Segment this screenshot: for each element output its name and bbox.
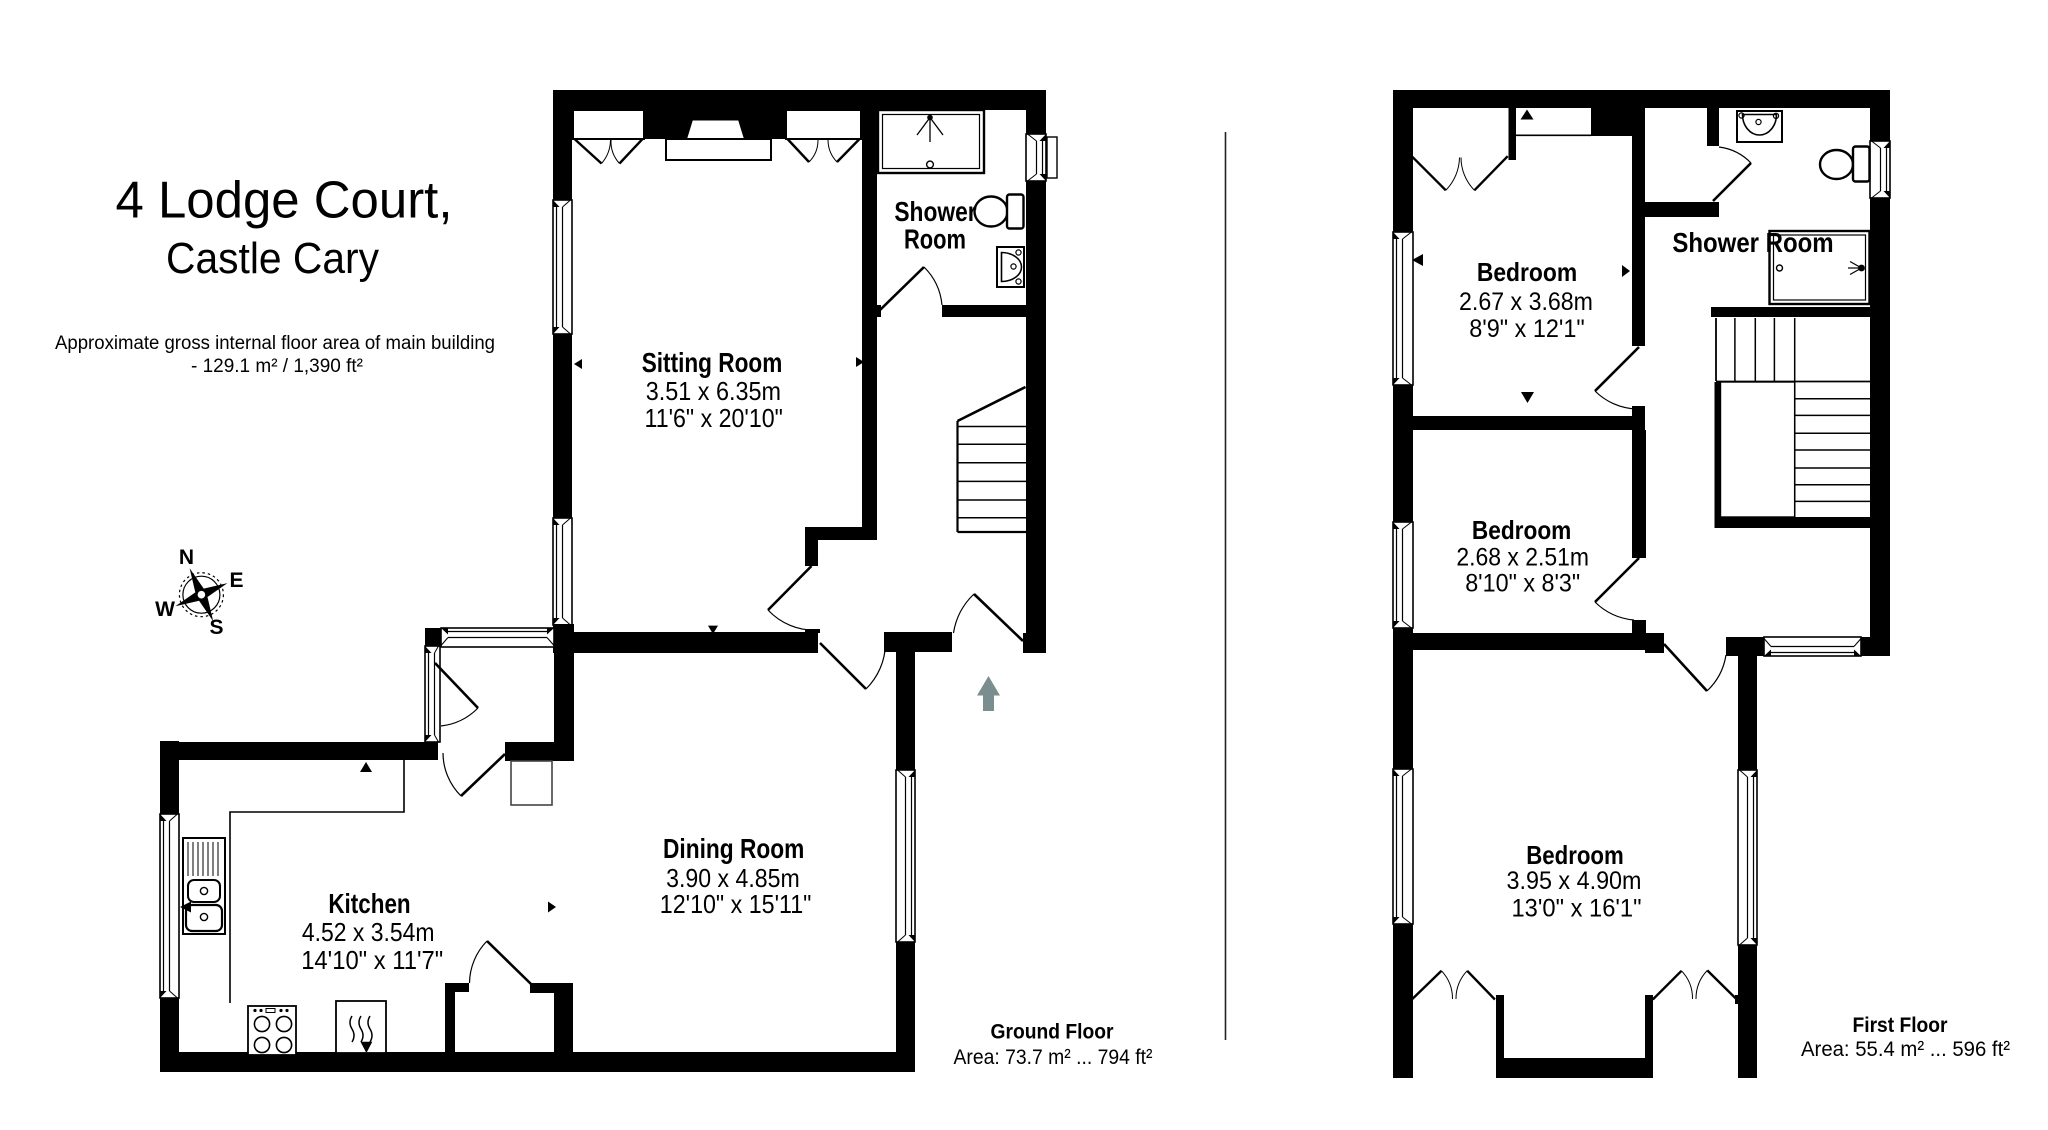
svg-text:Shower Room: Shower Room xyxy=(1672,227,1833,258)
svg-text:Area: 55.4 m² ... 596 ft²: Area: 55.4 m² ... 596 ft² xyxy=(1801,1037,2010,1061)
svg-text:13'0" x 16'1": 13'0" x 16'1" xyxy=(1512,895,1642,923)
svg-text:Castle Cary: Castle Cary xyxy=(166,234,379,283)
svg-text:Area: 73.7 m² ... 794 ft²: Area: 73.7 m² ... 794 ft² xyxy=(954,1045,1153,1069)
svg-text:2.67 x 3.68m: 2.67 x 3.68m xyxy=(1459,288,1593,316)
svg-text:Bedroom: Bedroom xyxy=(1472,515,1572,545)
svg-text:Sitting Room: Sitting Room xyxy=(642,347,783,378)
svg-text:3.51 x 6.35m: 3.51 x 6.35m xyxy=(646,376,781,406)
svg-text:12'10" x 15'11": 12'10" x 15'11" xyxy=(660,889,812,919)
svg-text:8'9" x 12'1": 8'9" x 12'1" xyxy=(1469,315,1585,343)
svg-text:E: E xyxy=(229,569,243,592)
svg-text:8'10" x 8'3": 8'10" x 8'3" xyxy=(1465,570,1580,598)
svg-text:4 Lodge Court,: 4 Lodge Court, xyxy=(116,172,453,230)
svg-text:S: S xyxy=(209,616,223,639)
svg-text:14'10" x 11'7": 14'10" x 11'7" xyxy=(301,945,443,975)
svg-text:- 129.1 m² / 1,390 ft²: - 129.1 m² / 1,390 ft² xyxy=(191,356,363,377)
svg-text:Kitchen: Kitchen xyxy=(328,888,410,919)
svg-text:2.68 x 2.51m: 2.68 x 2.51m xyxy=(1456,544,1589,572)
svg-text:Room: Room xyxy=(904,224,966,255)
svg-text:3.95 x 4.90m: 3.95 x 4.90m xyxy=(1507,867,1642,895)
svg-text:Dining Room: Dining Room xyxy=(663,833,804,864)
svg-text:Ground Floor: Ground Floor xyxy=(991,1020,1115,1044)
svg-text:Bedroom: Bedroom xyxy=(1526,840,1624,870)
svg-text:First Floor: First Floor xyxy=(1853,1013,1949,1037)
svg-text:Approximate gross internal flo: Approximate gross internal floor area of… xyxy=(55,333,495,354)
svg-text:4.52 x 3.54m: 4.52 x 3.54m xyxy=(302,917,435,947)
svg-text:Shower: Shower xyxy=(894,196,976,227)
svg-text:W: W xyxy=(155,598,175,621)
svg-text:N: N xyxy=(179,546,194,569)
svg-text:11'6" x 20'10": 11'6" x 20'10" xyxy=(645,403,783,433)
svg-text:Bedroom: Bedroom xyxy=(1477,257,1577,287)
